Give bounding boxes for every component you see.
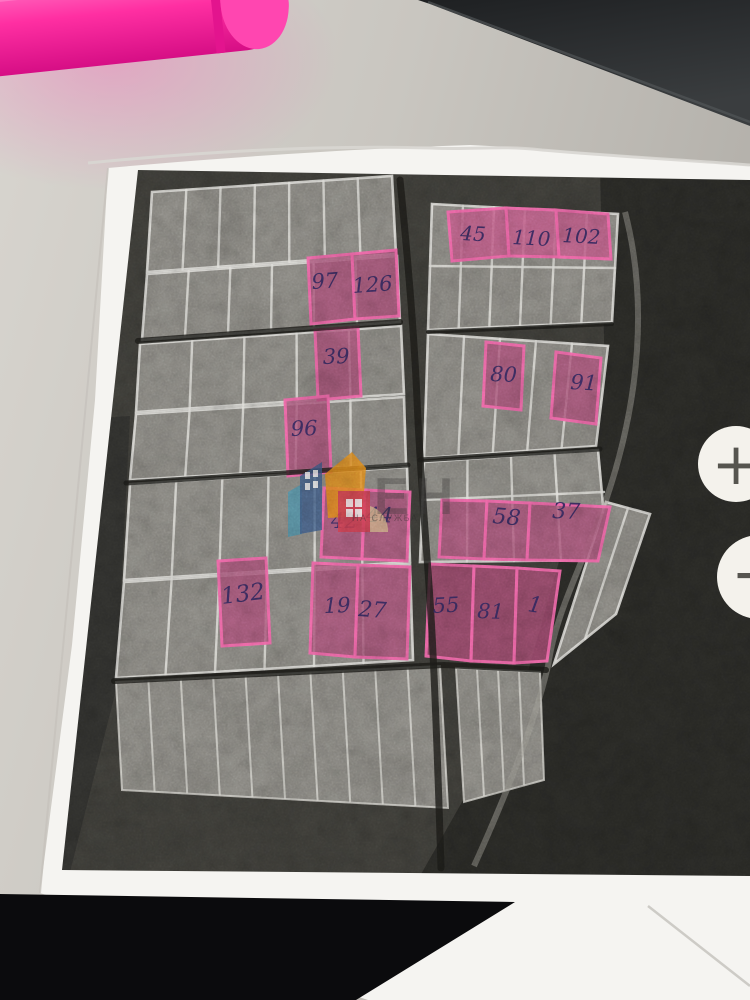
photo-of-parcel-map: 9712645110102398091964244583713219275581… [0,0,750,1000]
zoom-in-label: + [712,430,750,498]
zoom-out-label: − [731,537,750,610]
